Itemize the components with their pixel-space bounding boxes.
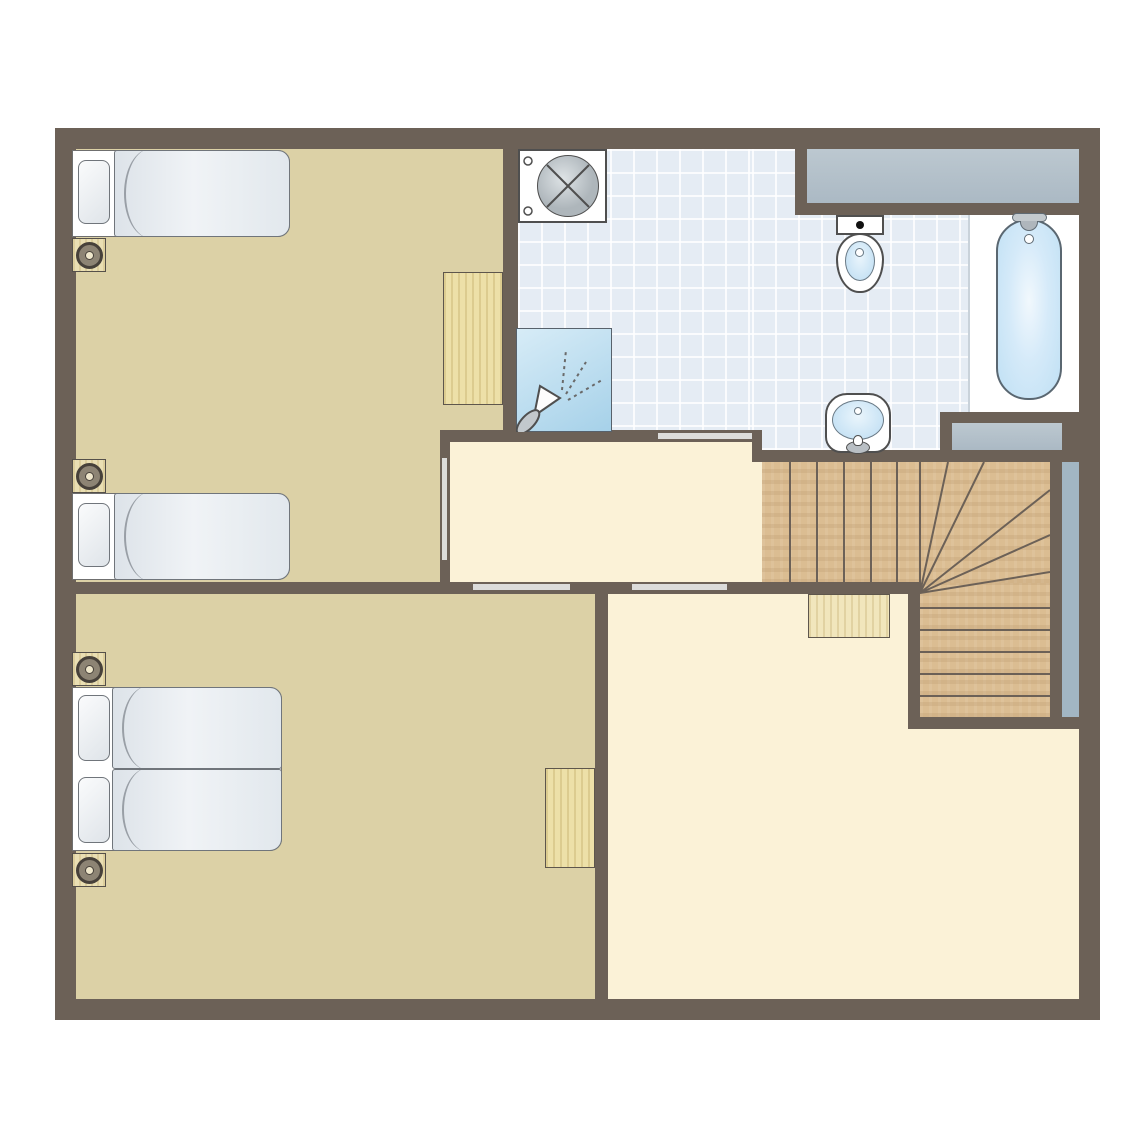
lamp-icon [76,656,103,683]
door-bedroom-top-left [442,458,447,560]
door-bathroom [658,433,752,439]
wall-bedroom2-living [595,582,608,999]
washbasin-bowl [832,400,884,440]
nightstand-2 [72,459,106,493]
bathtub [996,219,1062,400]
shower-head-icon [516,328,612,432]
wall-exterior-bottom [55,999,1100,1020]
lamp-dot [85,472,94,481]
wall-under-bathtub [940,412,1079,423]
blanket-fold [122,769,150,851]
single-bed-2-pillow [78,503,110,567]
wall-stairwell-left [908,583,920,729]
wall-stairwell-top [762,450,1079,462]
lamp-icon [76,242,103,269]
nightstand-1 [72,238,106,272]
wall-exterior-right [1079,128,1100,1020]
single-bed-2-blanket [114,493,290,580]
nightstand-4 [72,853,106,887]
lamp-icon [76,463,103,490]
wall-gray-niche-left [940,423,952,462]
washbasin-drain [854,407,862,415]
double-bed-blanket-top [112,687,282,769]
floor-plan [0,0,1145,1145]
lamp-icon [76,857,103,884]
washbasin-tap [853,435,863,446]
bathroom-counter [807,149,1079,203]
double-bed-pillow-bottom [78,777,110,843]
hallway-floor [450,442,762,582]
blanket-fold [124,493,152,580]
lamp-dot [85,665,94,674]
toilet-flush-button [856,221,864,229]
desk-bedroom-bottom-left [545,768,595,868]
toilet-drain [855,248,864,257]
nightstand-3 [72,652,106,686]
wall-gray-niche-right [1062,423,1079,462]
desk-bedroom-top-left [443,272,503,405]
stairs-banister-strip [1062,462,1079,717]
double-bed-pillow-top [78,695,110,761]
lamp-dot [85,251,94,260]
single-bed-1-pillow [78,160,110,224]
lamp-dot [85,866,94,875]
wall-exterior-top [55,128,1100,149]
bathtub-drain [1024,234,1034,244]
double-bed-blanket-bottom [112,769,282,851]
wall-hallway-top-corner [752,442,762,462]
toilet-water [845,241,875,281]
washing-machine-icon [518,149,607,223]
wall-counter-left [795,128,807,215]
blanket-fold [124,150,152,237]
single-bed-1-blanket [114,150,290,237]
wall-stairwell-right [1050,462,1062,717]
wall-stairwell-bottom [908,717,1079,729]
under-stair-cabinet [808,594,890,638]
door-bedroom-bottom-left [473,584,570,590]
door-living-room [632,584,727,590]
blanket-fold [122,687,150,769]
gray-niche-cabinet [952,423,1062,450]
